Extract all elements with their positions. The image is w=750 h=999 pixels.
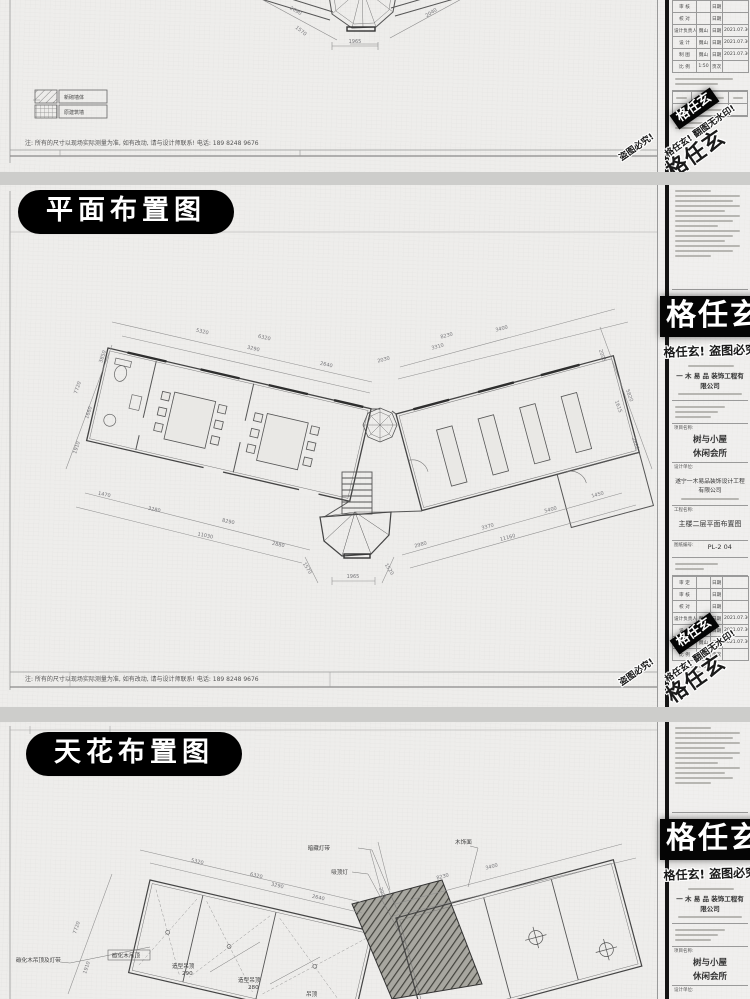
company-block: 一 木 易 品 装饰工程有限公司 bbox=[672, 368, 748, 401]
drawing-number-block: 图纸编号: PL-2 04 bbox=[672, 541, 748, 558]
contact-block bbox=[672, 924, 748, 947]
contact-block bbox=[672, 401, 748, 424]
project-name-line2: 休闲会所 bbox=[674, 970, 746, 982]
titleblock-black-bar bbox=[665, 0, 669, 172]
sheet-ceiling-plan: 5320 6320 3290 2640 2005 8230 3400 7720 … bbox=[0, 722, 750, 999]
dim-label: 8290 bbox=[221, 518, 235, 527]
watermark-warning: 格任玄! 盗图必究! bbox=[656, 863, 750, 884]
dim-label: 2005 bbox=[597, 349, 607, 363]
toilet-fixtures bbox=[101, 358, 149, 432]
footer-block bbox=[672, 661, 748, 678]
dim-label: 1910 bbox=[82, 961, 92, 975]
long-tables bbox=[437, 393, 592, 487]
meeting-table bbox=[245, 411, 320, 473]
dim-label: 2880 bbox=[630, 437, 640, 451]
design-unit-label: 设计单位: bbox=[674, 988, 746, 993]
notes-block bbox=[672, 185, 748, 290]
dim-label: 3400 bbox=[495, 324, 509, 333]
watermark-warning: 格任玄! 盗图必究! bbox=[656, 340, 750, 361]
dim-label: 2040 bbox=[424, 7, 438, 19]
dim-label: 8230 bbox=[440, 331, 454, 340]
staircase bbox=[320, 472, 391, 558]
callout-label: 290 bbox=[182, 971, 193, 977]
boxed-callout: 碳化木吊顶 bbox=[108, 950, 150, 960]
top-plan-drawing: 2690 2040 1570 1965 新砌墙体 原建筑墙 注: 所有的尺寸以现… bbox=[0, 0, 750, 172]
dimension-lines bbox=[66, 309, 652, 585]
remarks-block bbox=[672, 73, 748, 91]
sheet-note: 注: 所有的尺寸以现场实际测量为准, 如有改动, 请与设计师联系! 电话: 18… bbox=[25, 139, 259, 147]
left-wing bbox=[86, 348, 371, 504]
titleblock-black-bar bbox=[665, 722, 669, 999]
plan-title-pill: 平面布置图 bbox=[20, 192, 232, 232]
titleblock-black-bar bbox=[665, 185, 669, 707]
signature-table: 审 核日期 校 对日期 设计负责人魏山日期2021.07.30 设 计魏山日期2… bbox=[672, 0, 749, 73]
callout-label: 造型吊顶 bbox=[172, 962, 195, 970]
wood-ceiling-zone bbox=[352, 880, 482, 999]
dim-label: 6320 bbox=[249, 872, 263, 881]
callout-label: 280 bbox=[248, 985, 259, 991]
meeting-table bbox=[152, 389, 227, 451]
project-block: 项目名称: 树与小屋 休闲会所 bbox=[672, 947, 748, 986]
callout-label: 吸顶灯 bbox=[331, 868, 348, 876]
callout-label: 碳化木吊顶及灯带 bbox=[16, 956, 61, 964]
dim-label: 5320 bbox=[190, 858, 204, 867]
dim-label: 6320 bbox=[257, 334, 271, 343]
project-name-line1: 树与小屋 bbox=[674, 956, 746, 968]
design-unit-name: 遂宁一木易品装饰设计工程有限公司 bbox=[674, 476, 746, 494]
watermark-brand-box: 格任玄 bbox=[660, 296, 750, 337]
ceiling-lamp-icon bbox=[593, 936, 620, 963]
central-hall bbox=[324, 408, 422, 517]
dim-label: 2880 bbox=[271, 541, 285, 550]
callout-label: 暗藏灯带 bbox=[308, 844, 331, 852]
dim-label: 2030 bbox=[377, 355, 391, 364]
dim-label: 3310 bbox=[431, 342, 445, 351]
design-unit-block: 设计单位: 遂宁一木易品装饰设计工程有限公司 bbox=[672, 986, 748, 999]
project-block: 项目名称: 树与小屋 休闲会所 bbox=[672, 424, 748, 463]
project-name-line1: 树与小屋 bbox=[674, 433, 746, 445]
company-block: 一 木 易 品 装饰工程有限公司 bbox=[672, 891, 748, 924]
legend-label: 原建筑墙 bbox=[64, 109, 84, 116]
stamp-block bbox=[672, 558, 748, 576]
watermark-band: 格任玄 格任玄! 盗图必究! bbox=[672, 290, 748, 368]
right-wing bbox=[396, 356, 653, 564]
dim-label: 7720 bbox=[73, 381, 83, 395]
dim-label: 11160 bbox=[499, 533, 516, 543]
callout-label: 吊顶 bbox=[306, 991, 318, 998]
project-label: 项目名称: bbox=[674, 949, 746, 954]
watermark-band: 格任玄 格任玄! 盗图必究! bbox=[672, 813, 748, 891]
titleblock-ceiling: 格任玄 格任玄! 盗图必究! 一 木 易 品 装饰工程有限公司 项目名称: 树与… bbox=[657, 722, 750, 999]
legend: 新砌墙体 原建筑墙 bbox=[35, 90, 107, 118]
watermark-brand-box: 格任玄 bbox=[660, 819, 750, 860]
dim-label: 2640 bbox=[311, 894, 325, 903]
octagon-skylight bbox=[363, 408, 397, 442]
drawing-collage: { "brand": { "name": "格任玄", "warn_combo"… bbox=[0, 0, 750, 999]
design-unit-label: 设计单位: bbox=[674, 465, 746, 470]
signature-table: 审 定日期 审 核日期 校 对日期 设计负责人魏山日期2021.07.30 设 … bbox=[672, 576, 749, 661]
callout-label: 木饰面 bbox=[455, 838, 472, 846]
titleblock-plan: 格任玄 格任玄! 盗图必究! 一 木 易 品 装饰工程有限公司 项目名称: 树与… bbox=[657, 185, 750, 707]
countersign-grid bbox=[672, 91, 748, 117]
dim-label: 3290 bbox=[270, 882, 284, 891]
dim-label: 1570 bbox=[301, 561, 313, 575]
dim-label: 8230 bbox=[436, 872, 450, 881]
drawing-name-label: 工程名称: bbox=[674, 508, 746, 513]
dim-label: 1520 bbox=[383, 562, 395, 576]
legend-label: 新砌墙体 bbox=[64, 94, 84, 101]
dim-label: 1965 bbox=[347, 574, 360, 580]
dim-label: 1615 bbox=[613, 400, 623, 414]
drawing-name-block: 工程名称: 主楼二层平面布置图 bbox=[672, 506, 748, 541]
dim-label: 1910 bbox=[72, 441, 82, 455]
dim-label: 3280 bbox=[147, 506, 161, 515]
dimension-lines bbox=[68, 842, 636, 994]
dim-label: 1965 bbox=[349, 39, 362, 45]
company-name: 一 木 易 品 装饰工程有限公司 bbox=[674, 893, 746, 913]
misc-block bbox=[672, 117, 748, 134]
dim-label: 1570 bbox=[294, 25, 308, 38]
ceiling-lamp-icon bbox=[522, 924, 549, 951]
design-unit-block: 设计单位: 遂宁一木易品装饰设计工程有限公司 bbox=[672, 463, 748, 506]
drawing-name: 主楼二层平面布置图 bbox=[674, 519, 746, 529]
sheet-top-fragment: 2690 2040 1570 1965 新砌墙体 原建筑墙 注: 所有的尺寸以现… bbox=[0, 0, 750, 172]
dim-label: 3370 bbox=[481, 522, 495, 531]
sheet-floor-plan: 5320 6320 3290 2640 2030 8230 3400 3310 … bbox=[0, 185, 750, 707]
dim-label: 3290 bbox=[246, 345, 260, 354]
company-name: 一 木 易 品 装饰工程有限公司 bbox=[674, 370, 746, 390]
svg-text:碳化木吊顶: 碳化木吊顶 bbox=[112, 952, 140, 960]
sheet-note: 注: 所有的尺寸以现场实际测量为准, 如有改动, 请与设计师联系! 电话: 18… bbox=[25, 675, 259, 683]
dim-label: 2640 bbox=[319, 361, 333, 370]
dim-label: 1470 bbox=[97, 491, 111, 500]
dim-label: 3400 bbox=[485, 862, 499, 871]
ceiling-title-pill: 天花布置图 bbox=[28, 734, 240, 774]
project-label: 项目名称: bbox=[674, 426, 746, 431]
drawing-number-label: 图纸编号: bbox=[674, 543, 694, 548]
dim-label: 5320 bbox=[195, 328, 209, 337]
callout-label: 造型吊顶 bbox=[238, 976, 261, 984]
dim-label: 7720 bbox=[72, 921, 82, 935]
floor-plan-drawing: 5320 6320 3290 2640 2030 8230 3400 3310 … bbox=[0, 185, 750, 707]
project-name-line2: 休闲会所 bbox=[674, 447, 746, 459]
notes-block bbox=[672, 722, 748, 813]
titleblock-top: 审 核日期 校 对日期 设计负责人魏山日期2021.07.30 设 计魏山日期2… bbox=[657, 0, 750, 172]
bay-window bbox=[328, 0, 397, 31]
